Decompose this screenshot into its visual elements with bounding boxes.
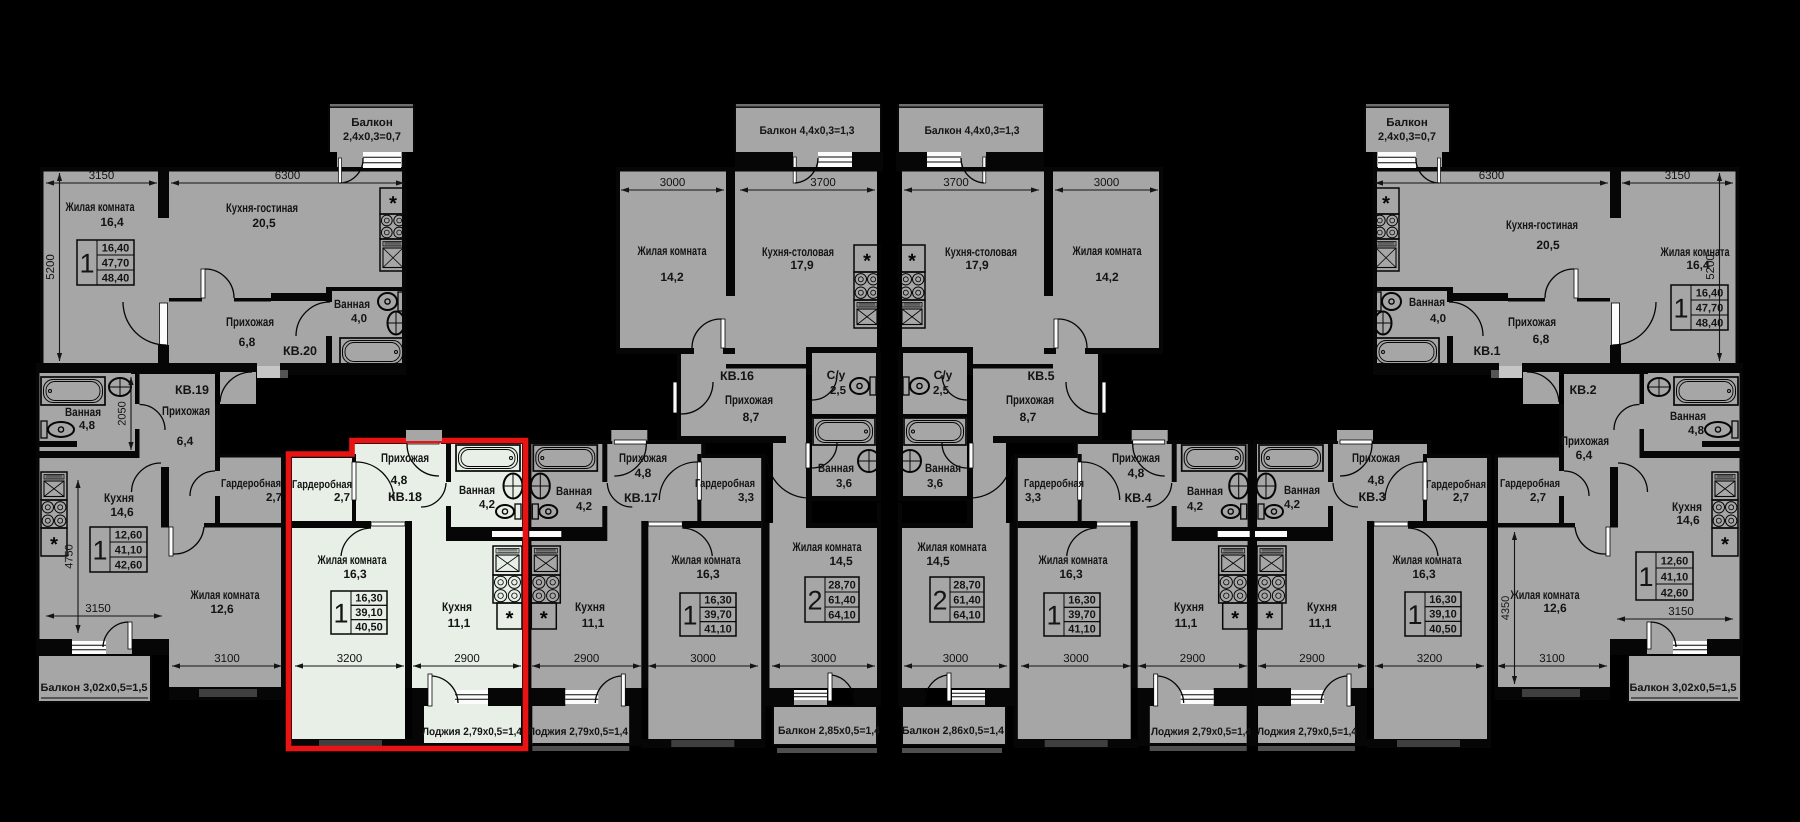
svg-text:16,3: 16,3 [1059, 567, 1083, 581]
svg-text:1: 1 [1638, 562, 1653, 592]
svg-text:4,2: 4,2 [1284, 499, 1300, 511]
svg-text:12,6: 12,6 [1543, 601, 1567, 615]
svg-text:Прихожая: Прихожая [619, 451, 667, 465]
svg-text:4,0: 4,0 [1430, 313, 1446, 325]
svg-text:*: * [540, 608, 548, 630]
svg-text:3200: 3200 [337, 653, 363, 665]
svg-text:11,1: 11,1 [448, 616, 471, 630]
svg-text:4,8: 4,8 [1128, 466, 1145, 480]
svg-text:Прихожая: Прихожая [1352, 451, 1400, 465]
svg-text:Жилая комната: Жилая комната [317, 553, 387, 567]
svg-text:Прихожая: Прихожая [1561, 434, 1609, 448]
svg-text:КВ.18: КВ.18 [388, 490, 422, 504]
svg-text:Жилая комната: Жилая комната [1392, 553, 1462, 567]
svg-text:16,40: 16,40 [102, 242, 130, 254]
svg-text:16,30: 16,30 [1068, 595, 1096, 607]
svg-text:КВ.5: КВ.5 [1027, 369, 1054, 383]
svg-text:Прихожая: Прихожая [725, 393, 773, 407]
svg-text:28,70: 28,70 [953, 579, 981, 591]
svg-text:41,10: 41,10 [704, 623, 732, 635]
svg-text:16,30: 16,30 [704, 595, 732, 607]
svg-text:*: * [1382, 193, 1390, 215]
svg-text:2,5: 2,5 [933, 385, 950, 397]
svg-text:4,8: 4,8 [391, 473, 408, 487]
svg-text:*: * [908, 251, 916, 273]
svg-text:Лоджия 2,79х0,5=1,4: Лоджия 2,79х0,5=1,4 [1257, 726, 1357, 738]
svg-text:Жилая комната: Жилая комната [1072, 244, 1142, 258]
svg-text:4,8: 4,8 [635, 466, 652, 480]
svg-text:11,1: 11,1 [1175, 616, 1198, 630]
svg-text:Гардеробная: Гардеробная [1426, 479, 1486, 491]
svg-text:Балкон 4,4х0,3=1,3: Балкон 4,4х0,3=1,3 [925, 125, 1020, 137]
svg-text:61,40: 61,40 [828, 594, 856, 606]
svg-text:*: * [1266, 608, 1274, 630]
svg-text:16,3: 16,3 [696, 567, 720, 581]
svg-text:16,4: 16,4 [100, 215, 124, 229]
svg-text:С/у: С/у [827, 368, 846, 382]
svg-text:Гардеробная: Гардеробная [695, 478, 755, 490]
svg-text:14,6: 14,6 [110, 505, 134, 519]
svg-text:2900: 2900 [454, 653, 480, 665]
svg-text:Прихожая: Прихожая [226, 315, 274, 329]
svg-text:Ванная: Ванная [65, 405, 101, 419]
svg-text:Жилая комната: Жилая комната [190, 588, 260, 602]
svg-text:2,5: 2,5 [830, 385, 847, 397]
svg-text:Кухня: Кухня [1307, 600, 1337, 614]
svg-text:40,50: 40,50 [1429, 623, 1457, 635]
svg-text:47,70: 47,70 [102, 257, 130, 269]
svg-text:Ванная: Ванная [459, 483, 495, 497]
svg-text:1: 1 [79, 249, 94, 279]
svg-text:КВ.20: КВ.20 [283, 344, 317, 358]
svg-text:Гардеробная: Гардеробная [292, 479, 352, 491]
svg-text:Балкон 3,02х0,5=1,5: Балкон 3,02х0,5=1,5 [41, 682, 148, 694]
svg-text:1: 1 [333, 599, 348, 629]
svg-text:КВ.2: КВ.2 [1569, 383, 1596, 397]
svg-text:12,6: 12,6 [210, 602, 234, 616]
svg-text:Ванная: Ванная [818, 461, 854, 475]
svg-text:Балкон 3,02х0,5=1,5: Балкон 3,02х0,5=1,5 [1630, 682, 1737, 694]
svg-text:Балкон 2,85х0,5=1,4: Балкон 2,85х0,5=1,4 [778, 725, 880, 737]
svg-text:Кухня: Кухня [1174, 600, 1204, 614]
svg-text:64,10: 64,10 [828, 609, 856, 621]
svg-text:Балкон: Балкон [1386, 117, 1428, 129]
svg-text:Балкон 2,86х0,5=1,4: Балкон 2,86х0,5=1,4 [902, 725, 1004, 737]
svg-text:16,30: 16,30 [1429, 594, 1457, 606]
svg-text:5200: 5200 [45, 254, 57, 280]
svg-text:64,10: 64,10 [953, 609, 981, 621]
svg-text:41,10: 41,10 [115, 544, 143, 556]
svg-text:Кухня-гостиная: Кухня-гостиная [1506, 218, 1578, 232]
svg-text:39,10: 39,10 [355, 607, 383, 619]
svg-text:Прихожая: Прихожая [1508, 315, 1556, 329]
svg-text:*: * [1231, 608, 1239, 630]
svg-text:3000: 3000 [660, 177, 686, 189]
svg-text:12,60: 12,60 [1661, 555, 1689, 567]
svg-text:8,7: 8,7 [743, 410, 760, 424]
svg-text:Ванная: Ванная [1187, 484, 1223, 498]
svg-text:Прихожая: Прихожая [1006, 393, 1054, 407]
svg-text:Ванная: Ванная [334, 297, 370, 311]
svg-text:3,3: 3,3 [1025, 492, 1041, 504]
svg-text:4,8: 4,8 [1368, 473, 1385, 487]
svg-text:КВ.17: КВ.17 [624, 491, 658, 505]
svg-text:6,8: 6,8 [1533, 332, 1550, 346]
svg-text:Лоджия 2,79х0,5=1,4: Лоджия 2,79х0,5=1,4 [1151, 726, 1251, 738]
svg-text:14,6: 14,6 [1676, 513, 1700, 527]
svg-text:2,7: 2,7 [334, 492, 350, 504]
svg-text:14,2: 14,2 [1095, 270, 1119, 284]
svg-text:2900: 2900 [1180, 653, 1206, 665]
svg-text:16,3: 16,3 [1412, 567, 1436, 581]
svg-text:2050: 2050 [117, 401, 129, 425]
svg-text:41,10: 41,10 [1068, 623, 1096, 635]
svg-text:Кухня: Кухня [1672, 500, 1702, 514]
svg-text:1: 1 [1407, 600, 1422, 630]
svg-text:6300: 6300 [1479, 170, 1505, 182]
svg-text:6,4: 6,4 [1576, 448, 1593, 462]
svg-text:16,3: 16,3 [343, 567, 367, 581]
svg-text:4,2: 4,2 [1187, 501, 1203, 513]
svg-text:КВ.3: КВ.3 [1358, 490, 1385, 504]
svg-text:3150: 3150 [1668, 606, 1694, 618]
svg-text:Гардеробная: Гардеробная [1024, 478, 1084, 490]
svg-text:Жилая комната: Жилая комната [917, 540, 987, 554]
svg-text:6300: 6300 [275, 170, 301, 182]
svg-text:Кухня-гостиная: Кухня-гостиная [226, 201, 298, 215]
svg-text:40,50: 40,50 [355, 621, 383, 633]
svg-text:Лоджия 2,79х0,5=1,4: Лоджия 2,79х0,5=1,4 [528, 726, 628, 738]
svg-text:14,2: 14,2 [660, 270, 684, 284]
svg-text:3000: 3000 [943, 653, 969, 665]
svg-text:Кухня: Кухня [104, 491, 134, 505]
svg-text:3000: 3000 [690, 653, 716, 665]
svg-text:2,7: 2,7 [266, 492, 282, 504]
svg-text:Гардеробная: Гардеробная [221, 478, 281, 490]
svg-text:17,9: 17,9 [965, 258, 989, 272]
svg-text:4,0: 4,0 [351, 313, 367, 325]
svg-text:2: 2 [807, 586, 822, 616]
svg-text:Балкон 4,4х0,3=1,3: Балкон 4,4х0,3=1,3 [760, 125, 855, 137]
svg-text:1: 1 [1046, 601, 1061, 631]
svg-text:Жилая комната: Жилая комната [637, 244, 707, 258]
svg-text:Ванная: Ванная [1284, 483, 1320, 497]
svg-text:12,60: 12,60 [115, 529, 143, 541]
svg-text:3000: 3000 [1094, 177, 1120, 189]
svg-text:8,7: 8,7 [1020, 410, 1037, 424]
svg-text:2900: 2900 [574, 653, 600, 665]
svg-text:2,4х0,3=0,7: 2,4х0,3=0,7 [343, 131, 401, 143]
svg-text:14,5: 14,5 [926, 554, 950, 568]
svg-text:3100: 3100 [214, 653, 240, 665]
svg-text:16,30: 16,30 [355, 593, 383, 605]
svg-text:3,6: 3,6 [836, 478, 852, 490]
svg-text:Жилая комната: Жилая комната [65, 200, 135, 214]
svg-text:Жилая комната: Жилая комната [1510, 588, 1580, 602]
svg-text:20,5: 20,5 [252, 216, 276, 230]
svg-text:2: 2 [932, 586, 947, 616]
svg-text:20,5: 20,5 [1536, 238, 1560, 252]
svg-text:3150: 3150 [1665, 170, 1691, 182]
svg-text:3000: 3000 [1063, 653, 1089, 665]
svg-text:1: 1 [1673, 294, 1688, 324]
svg-text:3,6: 3,6 [927, 478, 943, 490]
svg-text:4750: 4750 [64, 544, 76, 568]
svg-text:Ванная: Ванная [556, 484, 592, 498]
svg-text:*: * [863, 251, 871, 273]
svg-text:Ванная: Ванная [1670, 409, 1706, 423]
svg-text:Жилая комната: Жилая комната [1038, 553, 1108, 567]
svg-text:КВ.19: КВ.19 [175, 383, 209, 397]
svg-text:3200: 3200 [1417, 653, 1443, 665]
svg-text:4,8: 4,8 [1688, 425, 1705, 437]
svg-text:39,70: 39,70 [1068, 609, 1096, 621]
svg-text:Кухня: Кухня [575, 600, 605, 614]
svg-text:3700: 3700 [943, 177, 969, 189]
svg-text:2,7: 2,7 [1453, 492, 1469, 504]
svg-text:6,8: 6,8 [239, 335, 256, 349]
svg-text:Кухня-столовая: Кухня-столовая [945, 245, 1017, 259]
svg-text:5200: 5200 [1705, 254, 1717, 280]
svg-text:4350: 4350 [1500, 596, 1512, 620]
svg-text:Кухня: Кухня [442, 600, 472, 614]
svg-text:Жилая комната: Жилая комната [792, 540, 862, 554]
svg-text:2,7: 2,7 [1530, 492, 1546, 504]
svg-text:Ванная: Ванная [1409, 295, 1445, 309]
svg-text:3150: 3150 [89, 170, 115, 182]
svg-text:4,2: 4,2 [479, 499, 495, 511]
svg-text:Жилая комната: Жилая комната [671, 553, 741, 567]
svg-text:48,40: 48,40 [102, 272, 130, 284]
svg-text:*: * [50, 534, 58, 556]
svg-text:42,60: 42,60 [1661, 587, 1689, 599]
svg-text:3000: 3000 [811, 653, 837, 665]
svg-text:61,40: 61,40 [953, 594, 981, 606]
svg-text:Прихожая: Прихожая [381, 451, 429, 465]
svg-text:1: 1 [92, 536, 107, 566]
svg-text:Прихожая: Прихожая [1112, 451, 1160, 465]
svg-text:28,70: 28,70 [828, 579, 856, 591]
svg-text:*: * [506, 608, 514, 630]
svg-text:*: * [1721, 534, 1729, 556]
svg-text:2,4х0,3=0,7: 2,4х0,3=0,7 [1378, 131, 1436, 143]
svg-text:КВ.16: КВ.16 [720, 369, 754, 383]
svg-text:3150: 3150 [85, 603, 111, 615]
svg-text:3700: 3700 [810, 177, 836, 189]
svg-text:Лоджия 2,79х0,5=1,4: Лоджия 2,79х0,5=1,4 [422, 726, 522, 738]
svg-text:39,70: 39,70 [704, 609, 732, 621]
svg-text:С/у: С/у [934, 368, 953, 382]
svg-text:Прихожая: Прихожая [162, 404, 210, 418]
svg-text:2900: 2900 [1299, 653, 1325, 665]
svg-text:6,4: 6,4 [177, 434, 194, 448]
svg-text:3,3: 3,3 [738, 492, 754, 504]
svg-text:Балкон: Балкон [351, 117, 393, 129]
svg-text:41,10: 41,10 [1661, 571, 1689, 583]
svg-text:14,5: 14,5 [829, 554, 853, 568]
svg-text:39,10: 39,10 [1429, 609, 1457, 621]
svg-text:4,8: 4,8 [79, 420, 96, 432]
svg-text:11,1: 11,1 [582, 616, 605, 630]
svg-text:1: 1 [682, 601, 697, 631]
svg-text:4,2: 4,2 [576, 501, 592, 513]
svg-text:3100: 3100 [1539, 653, 1565, 665]
svg-text:11,1: 11,1 [1309, 616, 1332, 630]
svg-text:КВ.4: КВ.4 [1124, 491, 1151, 505]
svg-text:42,60: 42,60 [115, 559, 143, 571]
svg-text:КВ.1: КВ.1 [1473, 344, 1500, 358]
svg-text:Ванная: Ванная [925, 461, 961, 475]
svg-text:17,9: 17,9 [790, 258, 814, 272]
svg-text:*: * [389, 193, 397, 215]
svg-text:Гардеробная: Гардеробная [1500, 478, 1560, 490]
svg-text:Кухня-столовая: Кухня-столовая [762, 245, 834, 259]
